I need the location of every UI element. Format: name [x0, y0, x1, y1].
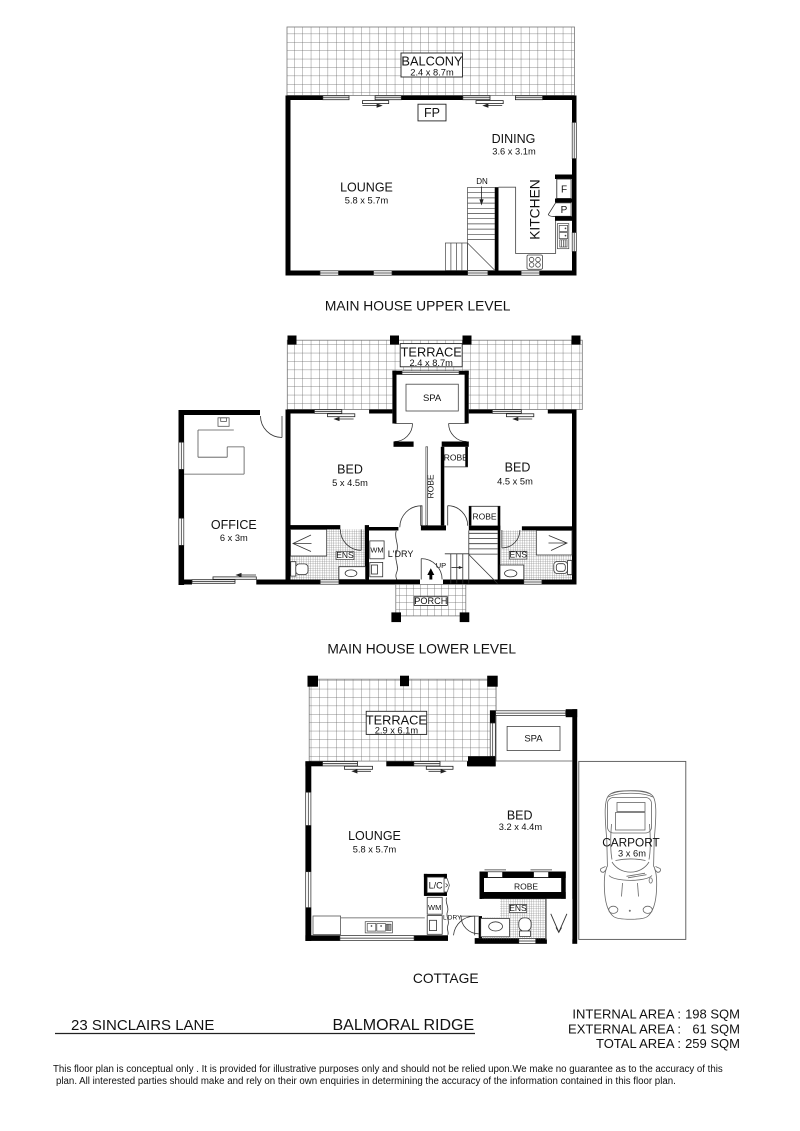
svg-text:ENS: ENS: [336, 550, 354, 560]
svg-text:MAIN HOUSE UPPER LEVEL: MAIN HOUSE UPPER LEVEL: [325, 299, 511, 314]
svg-text:BED: BED: [337, 463, 363, 477]
svg-text:2.9 x 6.1m: 2.9 x 6.1m: [375, 726, 419, 736]
svg-text:PORCH: PORCH: [414, 596, 447, 606]
svg-text:COTTAGE: COTTAGE: [413, 971, 479, 986]
svg-text:23 SINCLAIRS LANE: 23 SINCLAIRS LANE: [71, 1017, 214, 1034]
svg-text:EXTERNAL AREA :: EXTERNAL AREA :: [568, 1021, 681, 1036]
svg-text:This floor plan is conceptual: This floor plan is conceptual only . It …: [53, 1064, 723, 1075]
svg-text:WM: WM: [370, 546, 383, 555]
svg-text:UP: UP: [436, 561, 446, 570]
svg-text:3.2 x 4.4m: 3.2 x 4.4m: [499, 822, 543, 832]
svg-text:6 x 3m: 6 x 3m: [220, 533, 248, 543]
svg-text:LOUNGE: LOUNGE: [340, 181, 393, 195]
svg-text:2.4 x 8.7m: 2.4 x 8.7m: [410, 68, 454, 78]
svg-text:5.8 x 5.7m: 5.8 x 5.7m: [345, 196, 389, 206]
svg-text:3.6 x 3.1m: 3.6 x 3.1m: [492, 147, 536, 157]
svg-text:P: P: [561, 205, 568, 216]
svg-text:5 x 4.5m: 5 x 4.5m: [332, 478, 368, 488]
svg-text:TOTAL AREA :: TOTAL AREA :: [596, 1036, 681, 1051]
svg-text:DN: DN: [476, 177, 488, 186]
svg-text:SPA: SPA: [524, 734, 543, 745]
svg-text:MAIN HOUSE LOWER LEVEL: MAIN HOUSE LOWER LEVEL: [327, 642, 516, 657]
svg-text:CARPORT: CARPORT: [602, 836, 659, 850]
svg-text:INTERNAL AREA :: INTERNAL AREA :: [572, 1006, 681, 1021]
svg-text:BED: BED: [507, 809, 533, 823]
svg-text:ROBE: ROBE: [444, 452, 468, 462]
svg-text:WM: WM: [428, 903, 441, 912]
svg-text:L/C: L/C: [429, 880, 444, 890]
svg-text:3 x 6m: 3 x 6m: [618, 849, 646, 859]
svg-text:61 SQM: 61 SQM: [692, 1021, 740, 1036]
svg-text:5.8 x 5.7m: 5.8 x 5.7m: [353, 845, 397, 855]
svg-text:L'DRY: L'DRY: [388, 549, 414, 559]
svg-text:LOUNGE: LOUNGE: [348, 829, 401, 843]
svg-text:OFFICE: OFFICE: [211, 518, 257, 532]
svg-text:plan. All interested parties s: plan. All interested parties should make…: [56, 1076, 676, 1087]
svg-text:ROBE: ROBE: [472, 511, 496, 521]
svg-text:198 SQM: 198 SQM: [685, 1006, 740, 1021]
svg-text:ROBE: ROBE: [514, 881, 538, 891]
svg-text:2.4 x 8.7m: 2.4 x 8.7m: [409, 358, 453, 368]
svg-text:259 SQM: 259 SQM: [685, 1036, 740, 1051]
svg-text:ENS: ENS: [509, 550, 527, 560]
svg-text:ROBE: ROBE: [426, 474, 436, 498]
svg-text:4.5 x 5m: 4.5 x 5m: [497, 477, 533, 487]
svg-text:L'DRY: L'DRY: [443, 914, 462, 921]
svg-text:F: F: [561, 185, 567, 196]
svg-text:DINING: DINING: [492, 132, 536, 146]
svg-text:KITCHEN: KITCHEN: [527, 179, 542, 240]
svg-text:ENS: ENS: [509, 903, 527, 913]
svg-text:BALMORAL RIDGE: BALMORAL RIDGE: [333, 1017, 475, 1034]
svg-text:FP: FP: [424, 106, 440, 120]
svg-text:BALCONY: BALCONY: [401, 54, 463, 69]
svg-text:SPA: SPA: [423, 393, 442, 404]
svg-text:BED: BED: [505, 461, 531, 475]
